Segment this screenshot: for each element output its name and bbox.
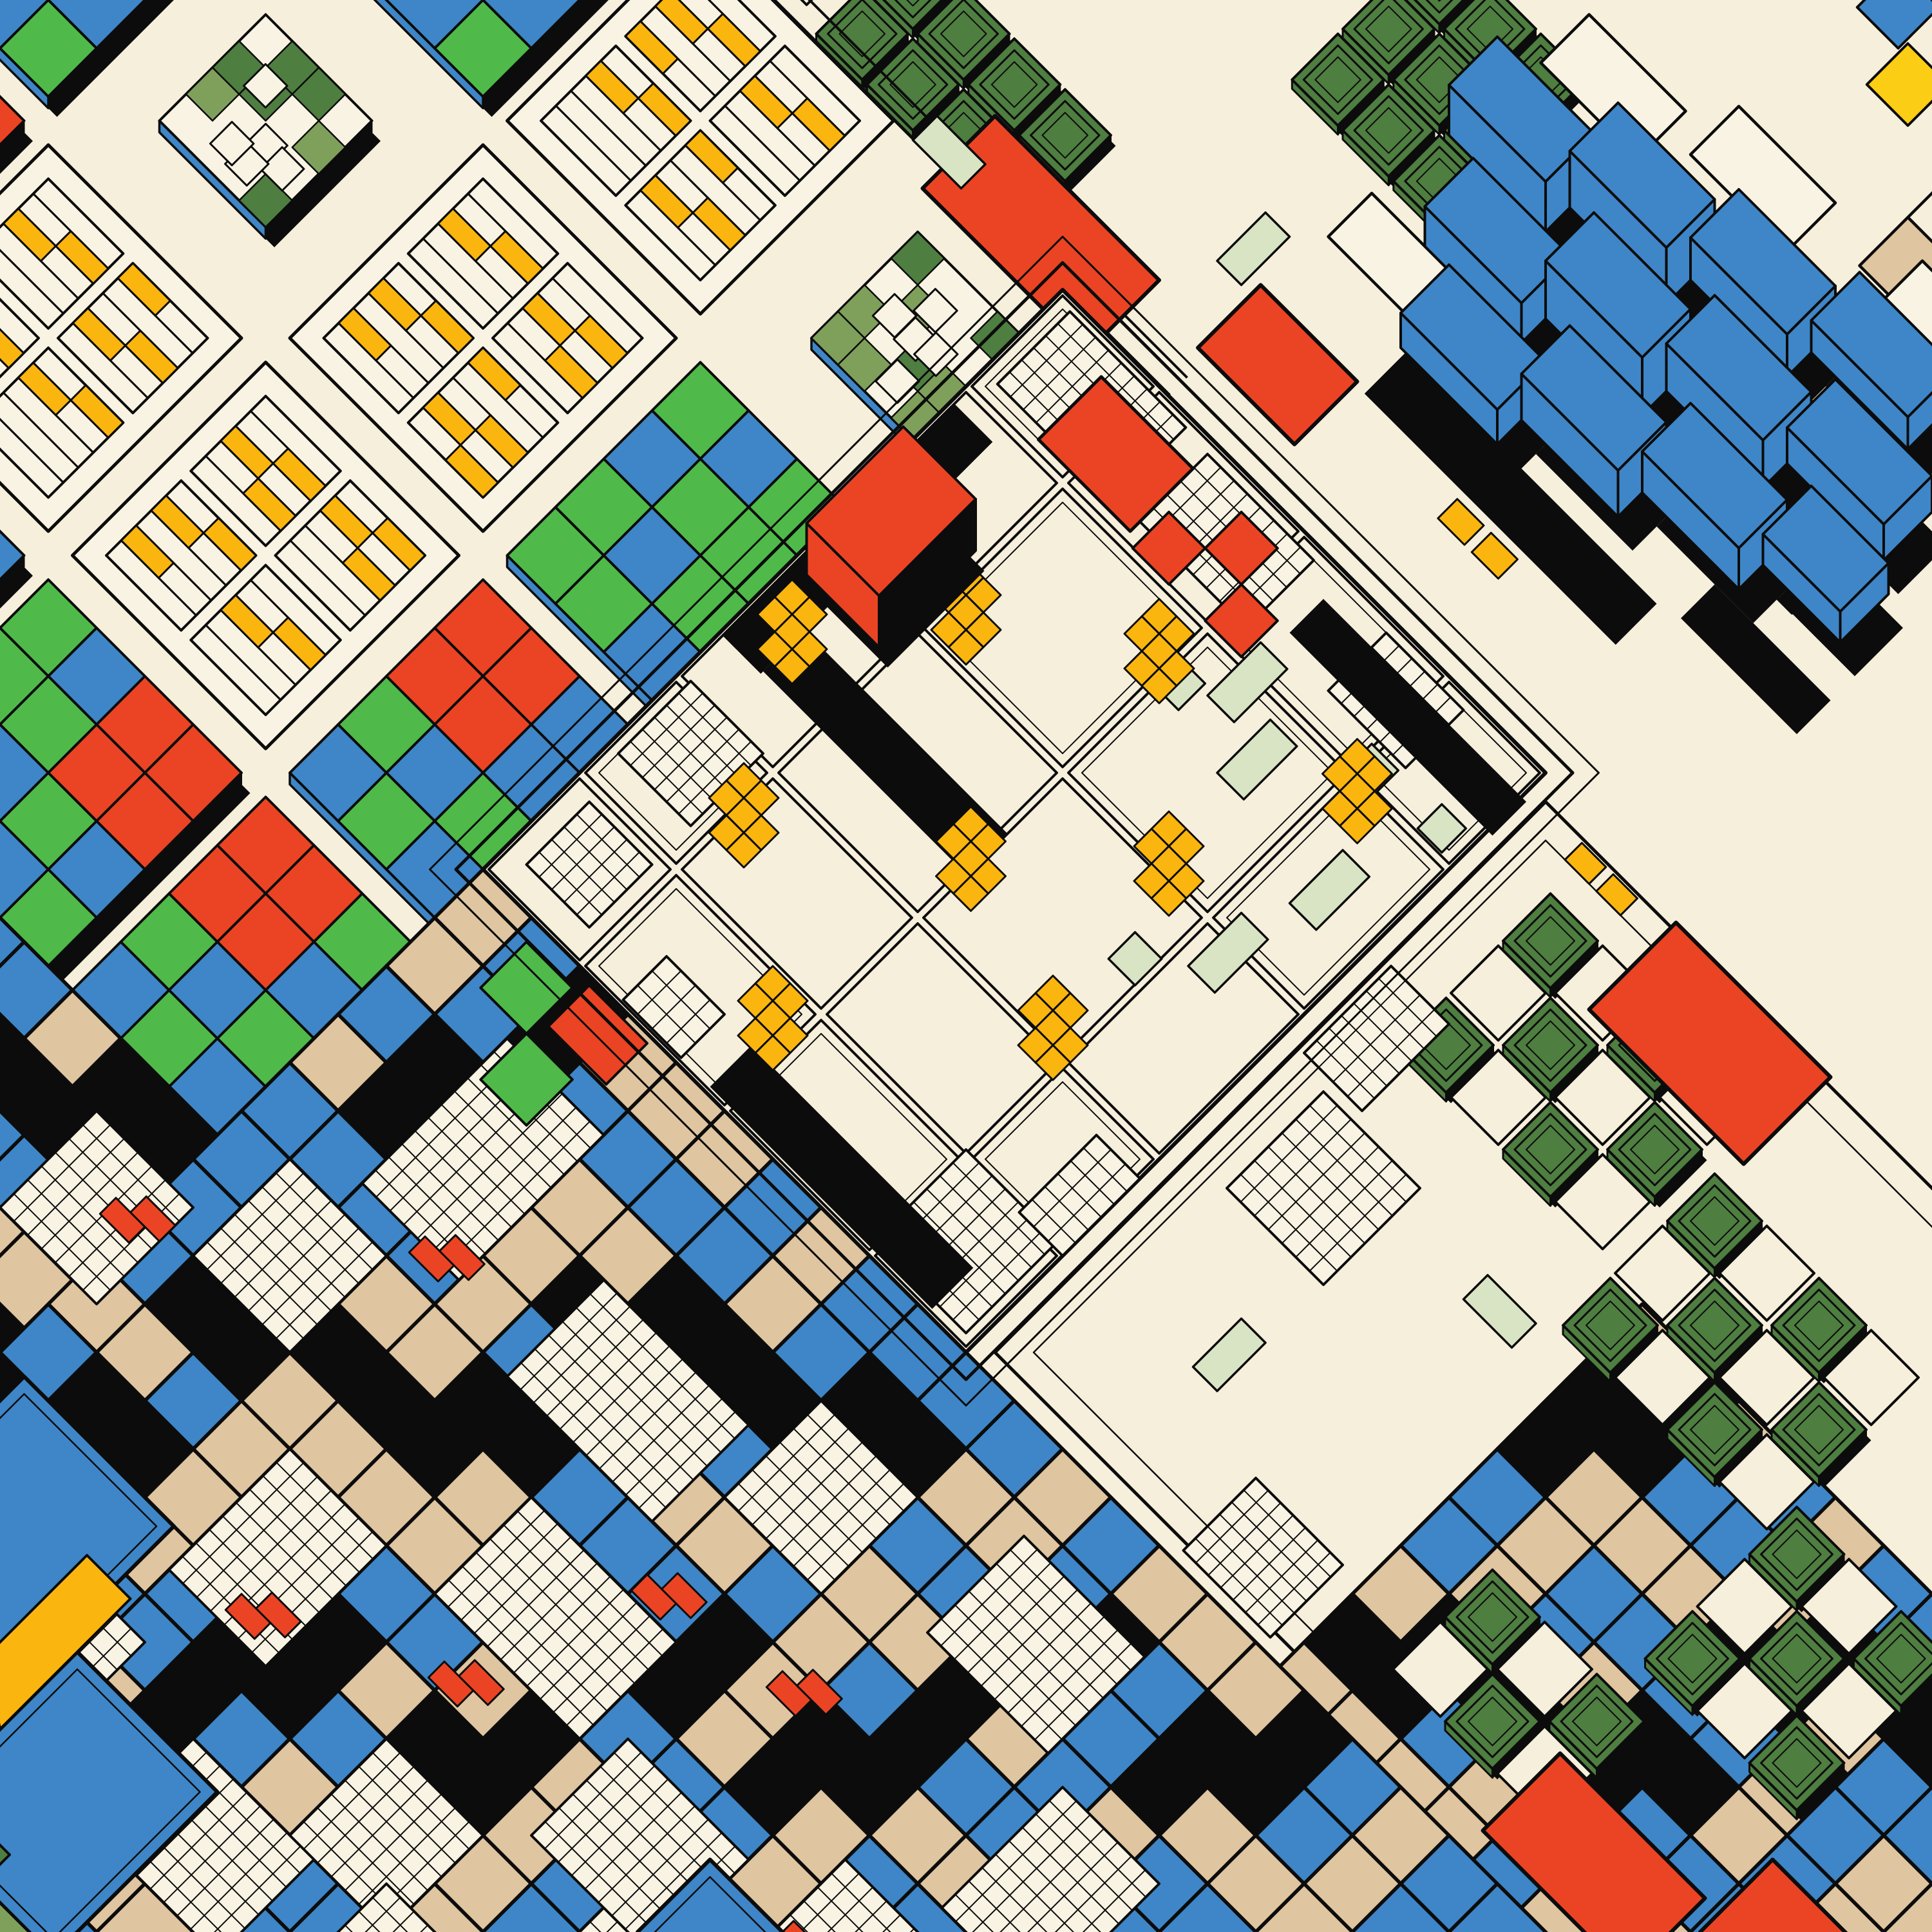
artwork-canvas: [0, 0, 1932, 1932]
isometric-generative-artwork: [0, 0, 1932, 1932]
